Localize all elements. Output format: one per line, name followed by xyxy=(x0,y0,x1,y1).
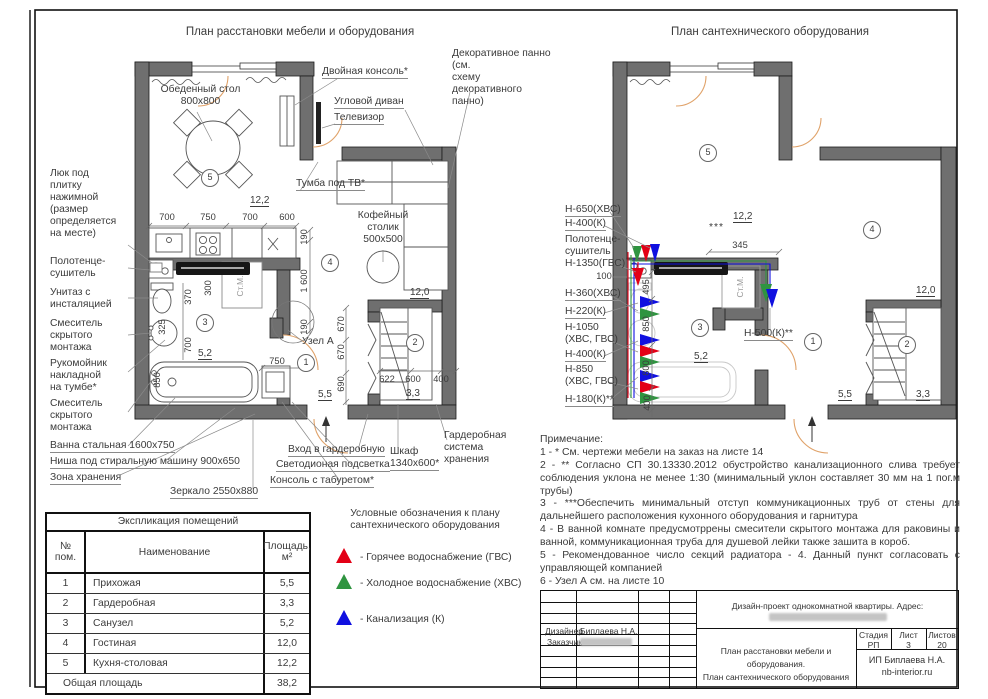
dim: 190 xyxy=(299,319,309,335)
sheet-header: Лист xyxy=(891,630,926,640)
col-header-area: Площадь, м² xyxy=(265,532,309,572)
dim: 800 xyxy=(641,360,651,376)
area-label-room2: 3,3 xyxy=(916,389,930,401)
pipe-label-h650: Н-650(ХВС) xyxy=(565,204,621,217)
title-block: Дизайн-проект однокомнатной квартиры. Ад… xyxy=(540,590,959,689)
dim: 700 xyxy=(239,212,261,222)
area-label-room5: 12,2 xyxy=(250,195,269,207)
pipe-label-towel: Полотенце- сушитель Н-1350(ГВС) xyxy=(565,234,627,270)
stage-header: Стадия xyxy=(856,630,891,640)
room-number-4: 4 xyxy=(321,254,339,272)
company-site: nb-interior.ru xyxy=(856,667,958,677)
callout-bath: Ванна стальная 1600x750 xyxy=(50,440,175,453)
dim: 850 xyxy=(641,316,651,332)
table-row: 5 Кухня-столовая 12,2 xyxy=(47,654,309,674)
table-row: 4 Гостиная 12,0 xyxy=(47,634,309,654)
note-line: 4 - В ванной комнате предусмотррены смес… xyxy=(540,524,960,550)
total-label: Общая площадь xyxy=(47,674,265,693)
room-number-3: 3 xyxy=(196,314,214,332)
area-label-room4: 12,0 xyxy=(410,287,429,299)
drawing-sheet: План расстановки мебели и оборудования П… xyxy=(0,0,988,699)
pipe-label-h850: Н-850 (ХВС, ГВС) xyxy=(565,364,627,388)
cell-area: 12,0 xyxy=(265,634,309,653)
col-header-name: Наименование xyxy=(86,532,265,572)
cell-number: 1 xyxy=(47,574,86,593)
cell-area: 3,3 xyxy=(265,594,309,613)
callout-toilet: Унитаз с инсталяцией xyxy=(50,287,130,311)
legend-item-k: - Канализация (К) xyxy=(336,610,445,625)
cell-area: 12,2 xyxy=(265,654,309,673)
dim: 190 xyxy=(299,229,309,245)
dim: 850 xyxy=(152,372,162,388)
dim: 400 xyxy=(642,395,652,411)
callout-shkaf: Шкаф 1340x600* xyxy=(390,446,439,471)
pipe-label-h180: Н-180(К)** xyxy=(565,394,614,407)
room-number-3: 3 xyxy=(691,319,709,337)
table-total-row: Общая площадь 38,2 xyxy=(47,674,309,693)
pipe-label-h500: Н-500(К)** xyxy=(744,328,793,341)
washer-label: Ст.М. xyxy=(735,277,745,298)
sewer-triangle-icon xyxy=(336,610,352,625)
notes-block: Примечание: 1 - * См. чертежи мебели на … xyxy=(540,434,960,589)
legend-item-hvs: - Холодное водоснабжение (ХВС) xyxy=(336,574,521,589)
cell-name: Гостиная xyxy=(86,634,265,653)
callout-double-console: Двойная консоль* xyxy=(322,66,408,79)
cell-name: Санузел xyxy=(86,614,265,633)
project-title: Дизайн-проект однокомнатной квартиры. Ад… xyxy=(700,601,955,621)
pipe-label-h400: Н-400(К) xyxy=(565,218,606,231)
callout-towel-dryer: Полотенце- сушитель xyxy=(50,256,130,280)
cell-name: Гардеробная xyxy=(86,594,265,613)
area-label-room5: 12,2 xyxy=(733,211,752,223)
callout-tv-stand: Тумба под ТВ* xyxy=(296,178,365,191)
sheet-title: План расстановки мебели и оборудования. … xyxy=(698,645,854,683)
callout-console-stool: Консоль с табуретом* xyxy=(270,475,374,488)
cell-name: Прихожая xyxy=(86,574,265,593)
designer-label: Дизайнер xyxy=(545,626,583,636)
total-value: 38,2 xyxy=(265,674,309,693)
cell-number: 4 xyxy=(47,634,86,653)
callout-storage-zone: Зона хранения xyxy=(50,472,121,485)
pipe-label-h220: Н-220(К) xyxy=(565,306,606,319)
right-plan-title: План сантехнического оборудования xyxy=(620,26,920,39)
dim: 300 xyxy=(203,280,213,296)
notes-title: Примечание: xyxy=(540,434,960,447)
washer-label: Ст.М. xyxy=(235,276,245,297)
sheets-value: 20 xyxy=(926,640,958,650)
hot-water-triangle-icon xyxy=(336,548,352,563)
stars-marker: *** xyxy=(709,222,724,234)
pipe-label-h360: Н-360(ХВС) xyxy=(565,288,621,301)
dim: 622 xyxy=(376,374,398,384)
table-row: 2 Гардеробная 3,3 xyxy=(47,594,309,614)
redacted-address xyxy=(769,613,887,621)
room-number-2: 2 xyxy=(406,334,424,352)
note-line: 3 - ***Обеспечить минимальный отступ ком… xyxy=(540,498,960,524)
legend-item-label: - Горячее водоснабжение (ГВС) xyxy=(360,552,512,563)
sheets-header: Листов xyxy=(926,630,958,640)
callout-corner-sofa: Угловой диван xyxy=(334,96,404,109)
dim: 750 xyxy=(197,212,219,222)
table-row: 3 Санузел 5,2 xyxy=(47,614,309,634)
room-number-1: 1 xyxy=(804,333,822,351)
callout-wardrobe-system: Гардеробная система хранения xyxy=(444,430,514,466)
callout-dining-table: Обеденный стол 800x800 xyxy=(148,84,253,108)
room-number-5: 5 xyxy=(201,169,219,187)
dim: 600 xyxy=(276,212,298,222)
cold-water-triangle-icon xyxy=(336,574,352,589)
left-plan-title: План расстановки мебели и оборудования xyxy=(150,26,450,39)
dim: 670 xyxy=(336,316,346,332)
cell-area: 5,2 xyxy=(265,614,309,633)
note-line: 1 - * См. чертежи мебели на заказ на лис… xyxy=(540,447,960,460)
cell-name: Кухня-столовая xyxy=(86,654,265,673)
room-number-1: 1 xyxy=(297,354,315,372)
room-number-4: 4 xyxy=(863,221,881,239)
dim: 345 xyxy=(728,240,752,250)
table-title: Экспликация помещений xyxy=(47,514,309,532)
callout-mixer-1: Смеситель скрытого монтажа xyxy=(50,318,130,354)
legend-title: Условные обозначения к плану сантехничес… xyxy=(330,508,520,532)
note-line: 6 - Узел А см. на листе 10 xyxy=(540,576,960,589)
callout-washer-niche: Ниша под стиральную машину 900x650 xyxy=(50,456,240,469)
callout-wardrobe-entry: Вход в гардеробную xyxy=(288,444,385,457)
dim: 370 xyxy=(183,289,193,305)
note-line: 2 - ** Согласно СП 30.13330.2012 обустро… xyxy=(540,460,960,499)
note-line: 5 - Рекомендованное число секций радиато… xyxy=(540,550,960,576)
area-label-room3: 5,2 xyxy=(198,348,212,360)
dim: 400 xyxy=(430,374,452,384)
legend-item-gvs: - Горячее водоснабжение (ГВС) xyxy=(336,548,512,563)
area-label-room1: 5,5 xyxy=(318,389,332,401)
dim: 1 600 xyxy=(299,269,309,292)
table-header-row: № пом. Наименование Площадь, м² xyxy=(47,532,309,574)
callout-basin: Рукомойник накладной на тумбе* xyxy=(50,358,130,394)
area-label-room4: 12,0 xyxy=(916,285,935,297)
dim: 690 xyxy=(336,376,346,392)
room-explication-table: Экспликация помещений № пом. Наименовани… xyxy=(45,512,311,695)
callout-mirror: Зеркало 2550x880 xyxy=(170,486,258,499)
room-number-5: 5 xyxy=(699,144,717,162)
dim: 600 xyxy=(402,374,424,384)
dim: 100 xyxy=(594,271,614,281)
cell-number: 3 xyxy=(47,614,86,633)
designer-name: Биплаева Н.А. xyxy=(580,626,637,636)
stage-value: РП xyxy=(856,640,891,650)
callout-node-a: Узел А xyxy=(302,336,334,348)
sheet-value: 3 xyxy=(891,640,926,650)
callout-coffee-table: Кофейный столик 500x500 xyxy=(352,210,414,246)
cell-number: 2 xyxy=(47,594,86,613)
redacted-client xyxy=(580,636,632,646)
legend-item-label: - Холодное водоснабжение (ХВС) xyxy=(360,578,521,589)
room-number-2: 2 xyxy=(898,336,916,354)
area-label-room3: 5,2 xyxy=(694,351,708,363)
dim: 700 xyxy=(183,337,193,353)
pipe-label-h400b: Н-400(К) xyxy=(565,349,606,362)
dim: 700 xyxy=(156,212,178,222)
dim: 325 xyxy=(157,319,167,335)
dim: 750 xyxy=(266,356,288,366)
callout-floor-hatch: Люк под плитку нажимной (размер определя… xyxy=(50,168,130,240)
client-label: Заказчик xyxy=(547,637,582,647)
dim: 670 xyxy=(336,344,346,360)
legend-item-label: - Канализация (К) xyxy=(360,614,445,625)
area-label-room2: 3,3 xyxy=(406,388,420,400)
cell-number: 5 xyxy=(47,654,86,673)
table-row: 1 Прихожая 5,5 xyxy=(47,574,309,594)
callout-decor-panel: Декоративное панно (см. схему декоративн… xyxy=(452,48,552,108)
dim: 495 xyxy=(641,279,651,295)
callout-mixer-2: Смеситель скрытого монтажа xyxy=(50,398,130,434)
callout-tv: Телевизор xyxy=(334,112,384,125)
area-label-room1: 5,5 xyxy=(838,389,852,401)
project-title-text: Дизайн-проект однокомнатной квартиры. Ад… xyxy=(732,601,924,611)
company-name: ИП Биплаева Н.А. xyxy=(856,655,958,665)
cell-area: 5,5 xyxy=(265,574,309,593)
col-header-number: № пом. xyxy=(47,532,86,572)
callout-led-light: Светодионая подсветка xyxy=(276,459,390,472)
pipe-label-h1050: Н-1050 (ХВС, ГВС) xyxy=(565,322,627,346)
